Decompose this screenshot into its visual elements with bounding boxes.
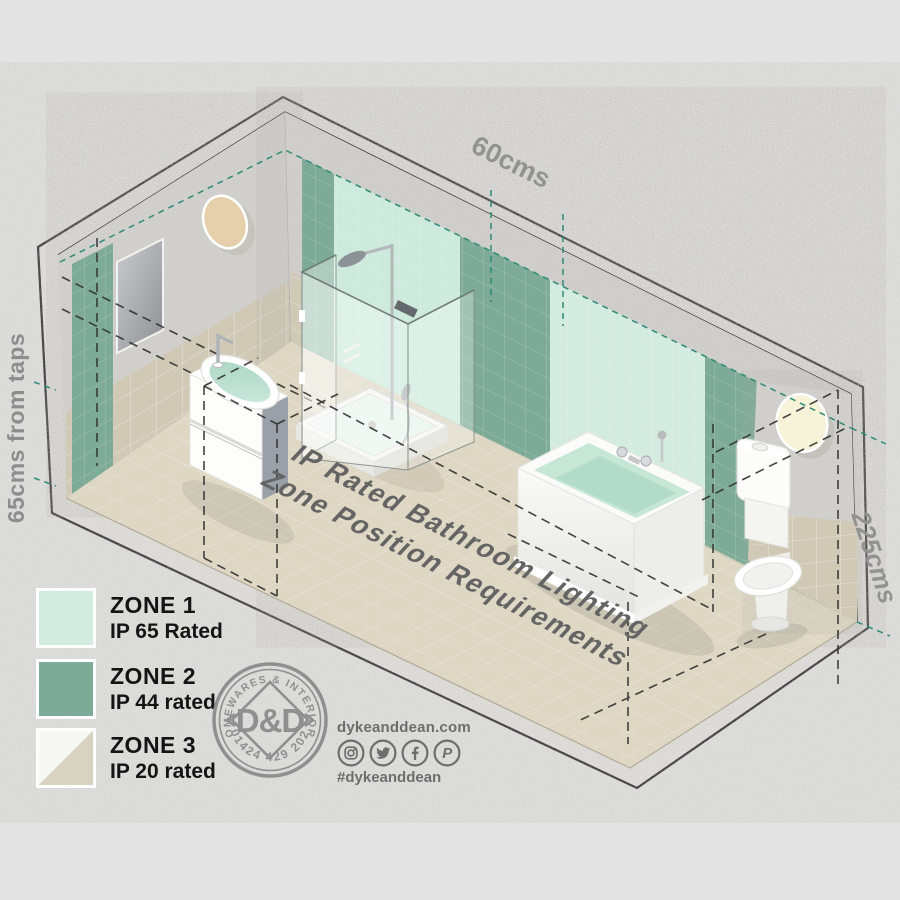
zone1-label: ZONE 1 [110, 591, 223, 620]
infographic-canvas: 60cms 65cms from taps 225cms IP Rated Ba… [0, 0, 900, 900]
zone1-rating: IP 65 Rated [110, 619, 223, 645]
svg-text:60cms: 60cms [467, 130, 556, 194]
svg-text:P: P [442, 745, 453, 762]
dimension-label-top: 60cms [467, 130, 556, 194]
facebook-icon[interactable] [401, 739, 429, 767]
social-block: dykeanddean.com P #dykeanddean [337, 719, 487, 786]
website-link[interactable]: dykeanddean.com [337, 719, 487, 736]
legend-row-zone2: ZONE 2 IP 44 rated [36, 659, 216, 719]
dimension-label-left: 65cms from taps [3, 333, 29, 523]
svg-text:65cms from taps: 65cms from taps [3, 333, 29, 523]
zone2-rating: IP 44 rated [110, 690, 216, 716]
dyke-and-dean-stamp-logo: HOMEWARES & INTERIORS 01424 429 202 D&D [208, 658, 332, 787]
zone2-panel-basin [72, 243, 113, 500]
legend-row-zone3: ZONE 3 IP 20 rated [36, 728, 216, 788]
pinterest-icon[interactable]: P [433, 739, 461, 767]
legend-row-zone1: ZONE 1 IP 65 Rated [36, 588, 223, 648]
twitter-icon[interactable] [369, 739, 397, 767]
zone1-swatch [36, 588, 96, 648]
hashtag-label[interactable]: #dykeanddean [337, 769, 487, 786]
instagram-icon[interactable] [337, 739, 365, 767]
social-icons-row: P [337, 739, 487, 767]
zone2-swatch [36, 659, 96, 719]
zone3-label: ZONE 3 [110, 731, 216, 760]
zone3-rating: IP 20 rated [110, 759, 216, 785]
stamp-monogram-text: D&D [236, 702, 305, 739]
zone3-swatch [36, 728, 96, 788]
zone2-label: ZONE 2 [110, 662, 216, 691]
